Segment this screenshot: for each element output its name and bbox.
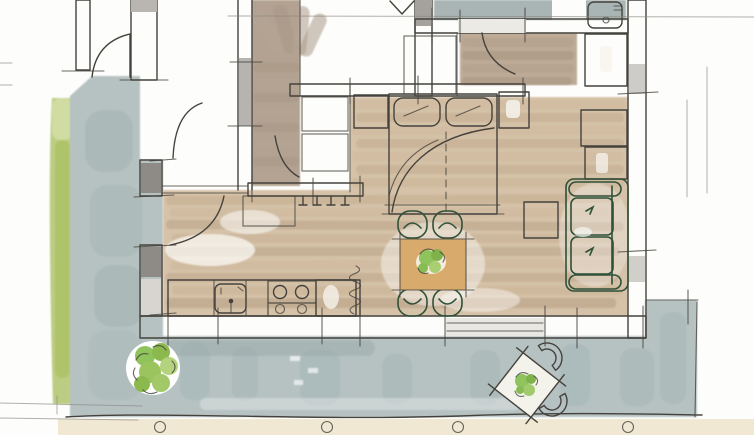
nightstand-highlight xyxy=(506,100,520,118)
plant-leaf xyxy=(429,261,441,273)
plant-leaf xyxy=(523,384,535,396)
wall-light-patch xyxy=(629,256,645,282)
garden-shrub xyxy=(126,341,180,395)
hall-wall-fill xyxy=(239,58,251,126)
wardrobe-highlight xyxy=(600,46,612,72)
sofa-highlight xyxy=(574,227,592,237)
shrub-leaf xyxy=(134,376,150,392)
grass-light-top xyxy=(52,98,73,140)
floor-plan-canvas xyxy=(0,0,754,435)
plant-leaf xyxy=(526,374,536,384)
wardrobe-highlight xyxy=(596,153,608,173)
terrace-door-opening xyxy=(445,318,545,336)
dining-set xyxy=(392,211,474,316)
wall-light-patch xyxy=(629,64,645,94)
bathroom-door-opening xyxy=(458,19,526,33)
wall-fill xyxy=(141,247,161,277)
table-plant xyxy=(416,249,446,274)
grass-dark-core xyxy=(55,140,70,378)
floor-plan-drawing xyxy=(0,0,754,435)
wall-shade xyxy=(131,0,157,12)
wall-shade xyxy=(415,0,432,26)
wall-fill-light xyxy=(141,279,161,315)
shrub-leaf xyxy=(152,374,170,392)
gravel-wash xyxy=(58,419,754,435)
wall-fill xyxy=(141,163,161,193)
cabinet-highlight xyxy=(323,285,339,309)
plant-leaf xyxy=(516,386,524,394)
